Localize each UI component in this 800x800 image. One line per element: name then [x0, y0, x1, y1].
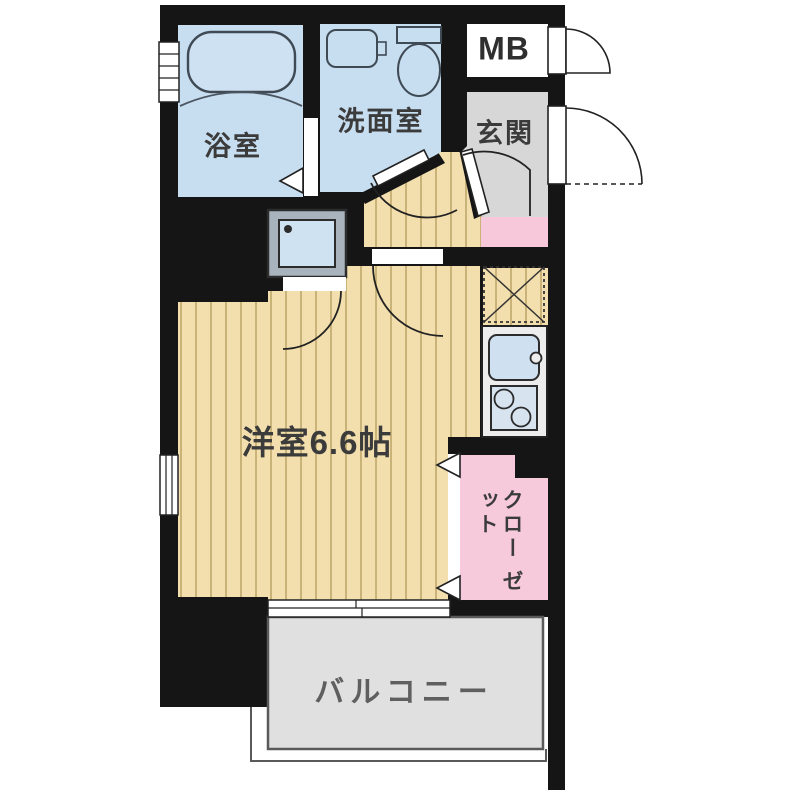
washing-machine-knob: [284, 225, 292, 233]
wall-kitchen-top: [481, 247, 548, 268]
bathroom-window: [159, 42, 179, 102]
meter-box-door-leaf: [548, 27, 566, 74]
wall-block-bottom-left: [160, 597, 268, 707]
washer-niche-opening: [283, 277, 346, 291]
entrance-label: 玄関: [476, 112, 534, 151]
front-door-leaf: [548, 106, 566, 184]
room-door-opening: [372, 249, 443, 264]
bathroom-label: 浴室: [204, 125, 262, 164]
kitchen-faucet-icon: [531, 353, 542, 364]
closet-label-column-right: クロー: [500, 489, 523, 561]
bathtub-icon: [188, 32, 295, 92]
wall-closet-notch: [515, 456, 548, 478]
washroom-label: 洗面室: [338, 100, 425, 139]
meter-box-door-swing: [566, 29, 610, 73]
front-door-swing: [566, 108, 642, 184]
meter-box-label: MB: [478, 31, 530, 68]
entrance-step-floor: [481, 217, 548, 247]
bathroom-door-opening: [304, 118, 318, 196]
wall-washroom-mb: [441, 24, 467, 152]
closet-label: クロー ゼット: [474, 489, 524, 607]
room-side-window: [160, 455, 178, 515]
floorplan-canvas: 浴室 洗面室 MB 玄関 洋室6.6帖 クロー ゼット バルコニー: [0, 0, 800, 800]
balcony-label: バルコニー: [314, 667, 493, 711]
wall-closet-top: [448, 437, 548, 456]
western-room-label: 洋室6.6帖: [242, 416, 393, 464]
